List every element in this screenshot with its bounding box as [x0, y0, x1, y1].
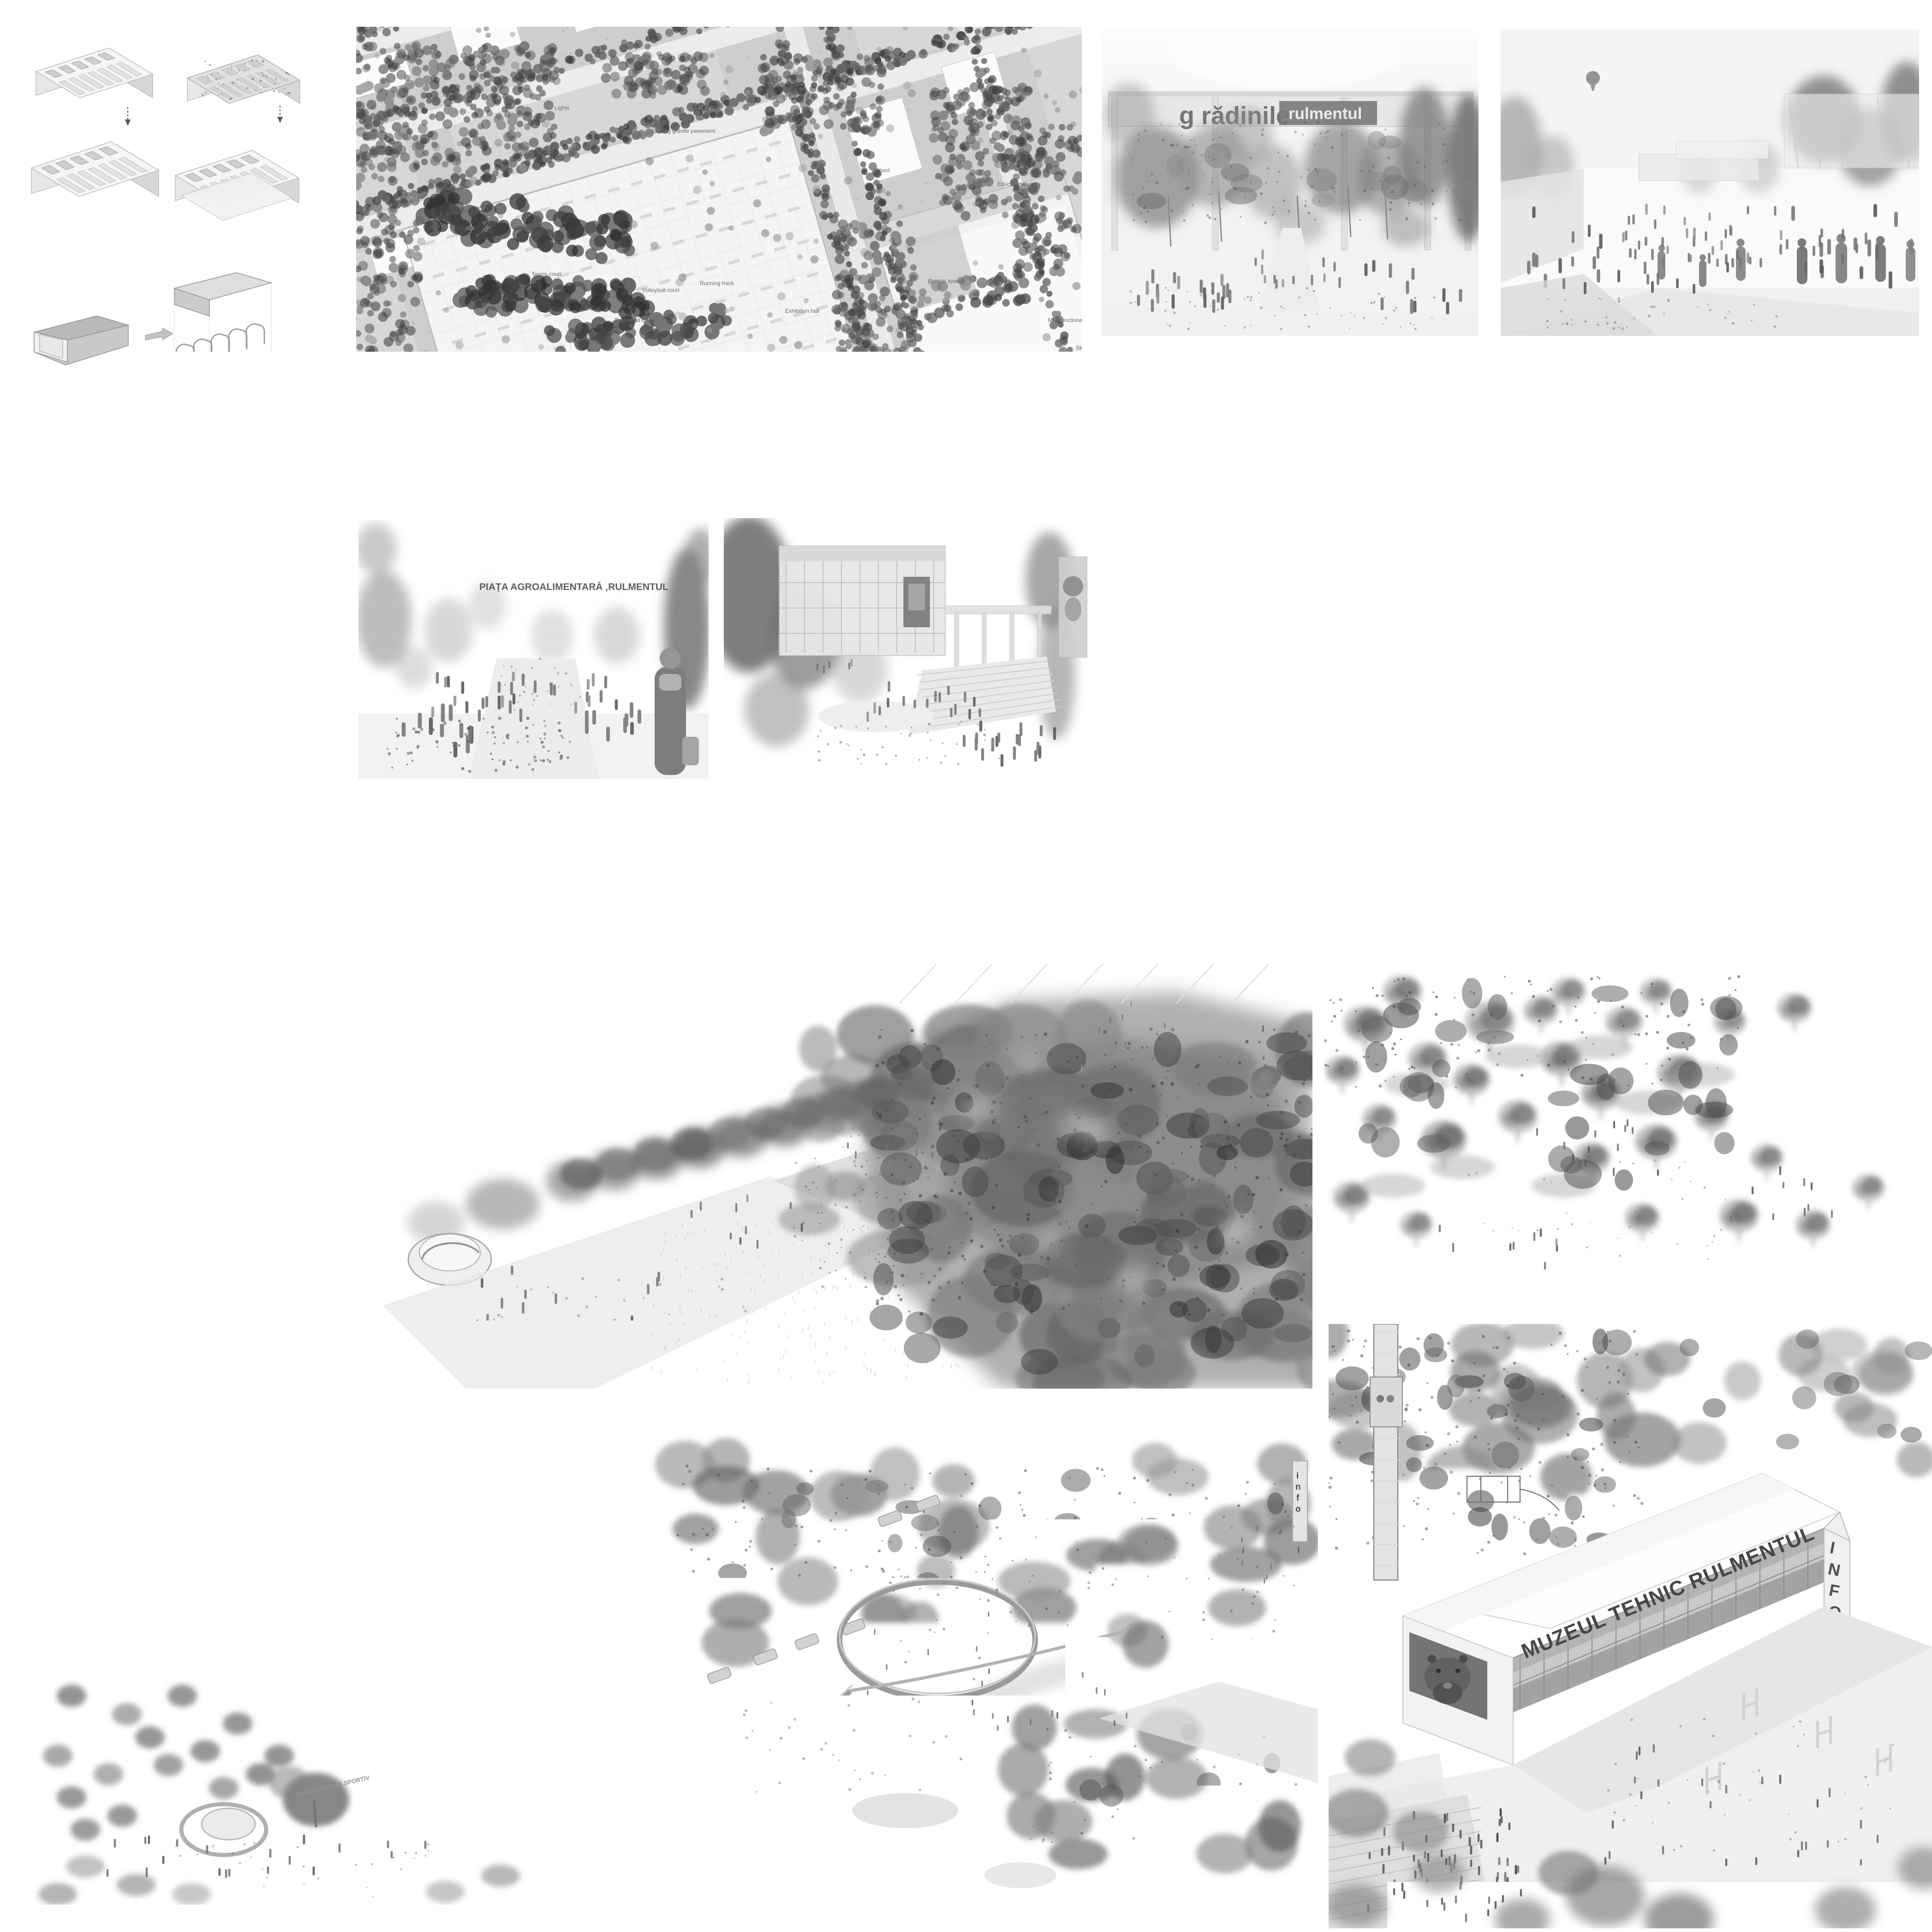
svg-text:Urban gardening market: Urban gardening market: [734, 398, 794, 404]
svg-text:Cafe and meeting space: Cafe and meeting space: [1495, 769, 1555, 776]
svg-text:Stage storage: Stage storage: [1172, 683, 1204, 688]
svg-text:Freestyle arena: Freestyle arena: [1707, 646, 1746, 653]
svg-text:Educational clubs: Educational clubs: [997, 181, 1041, 187]
svg-text:Drainage asphalt: Drainage asphalt: [633, 499, 675, 506]
svg-text:o: o: [1295, 1504, 1301, 1514]
svg-text:for stage design: for stage design: [1103, 720, 1135, 725]
svg-text:Volleyball court: Volleyball court: [642, 287, 680, 293]
svg-text:n: n: [1295, 1482, 1301, 1492]
svg-text:Cloakroom: Cloakroom: [1439, 687, 1464, 693]
svg-text:School: School: [873, 167, 890, 173]
svg-text:separated from the main hall b: separated from the main hall by movable …: [1153, 574, 1325, 580]
svg-text:Market space for local manufac: Market space for local manufactures: [721, 462, 810, 469]
svg-text:Tennis court: Tennis court: [531, 271, 561, 277]
svg-text:rulmentul: rulmentul: [1288, 105, 1362, 123]
svg-text:Multifunctional hall: Multifunctional hall: [1048, 317, 1082, 323]
svg-text:Flexible foyer café/library wi: Flexible foyer café/library with access …: [1610, 813, 1771, 819]
svg-text:f: f: [1296, 1493, 1300, 1503]
svg-text:Running track: Running track: [700, 280, 734, 286]
svg-text:Exhibition and event space: Exhibition and event space: [1716, 579, 1783, 586]
svg-text:Creative activities: Creative activities: [1859, 772, 1895, 777]
svg-text:CLUB SPORTIV ‚RULMENTUL‘: CLUB SPORTIV ‚RULMENTUL‘: [76, 565, 299, 580]
svg-text:Exhibition hall: Exhibition hall: [785, 308, 819, 314]
svg-text:Access to educational centre: Access to educational centre: [1781, 950, 1840, 955]
svg-text:Atelier 2: Atelier 2: [1777, 507, 1794, 512]
svg-text:Multi-function hall: Multi-function hall: [1342, 568, 1385, 574]
svg-text:Course room: Course room: [1746, 701, 1776, 707]
svg-text:for night shows: for night shows: [1446, 433, 1484, 439]
svg-text:i: i: [1296, 1471, 1299, 1481]
svg-text:Delivery access: Delivery access: [1103, 714, 1135, 719]
svg-text:Sports clubs: Sports clubs: [762, 116, 793, 123]
svg-text:Ticket office: Ticket office: [1255, 769, 1284, 775]
svg-text:Multipurpose hall / flexible a: Multipurpose hall / flexible auditorium …: [1153, 566, 1259, 572]
svg-text:Existing granite pavement: Existing granite pavement: [651, 128, 716, 134]
svg-text:Open activity space in the mul: Open activity space in the multifunction…: [1446, 417, 1556, 423]
svg-text:Library: Library: [1809, 728, 1825, 733]
svg-text:Flexible foyer over the entire: Flexible foyer over the entire length: [1319, 769, 1406, 776]
svg-text:Basketball courts: Basketball courts: [614, 317, 656, 323]
svg-text:Reception: Reception: [1884, 576, 1905, 581]
svg-text:Central space: Central space: [928, 278, 962, 284]
svg-text:Community maker spaces - urban: Community maker spaces - urban manufactu…: [573, 432, 704, 439]
svg-text:Wardrobe Guests: Wardrobe Guests: [1216, 728, 1255, 733]
svg-text:Access: Access: [1103, 747, 1117, 752]
svg-text:Educational centre: Educational centre: [1762, 763, 1804, 768]
svg-text:PIAȚA AGROALIMENTARĂ ‚RULMENTU: PIAȚA AGROALIMENTARĂ ‚RULMENTUL: [479, 582, 668, 592]
svg-text:Makerspace atelier: Makerspace atelier: [1119, 767, 1162, 773]
svg-text:Rehearsal spaces: Rehearsal spaces: [1513, 566, 1557, 573]
svg-text:Main access to the multi-purpo: Main access to the multi-purpose hall an…: [1278, 947, 1404, 954]
svg-text:Lights: Lights: [555, 105, 569, 111]
svg-text:Atelier 1: Atelier 1: [1708, 507, 1725, 512]
svg-text:Kitchen: Kitchen: [1535, 687, 1552, 693]
svg-text:maker space: maker space: [1103, 753, 1129, 758]
svg-text:flexible roof, overhead crane: flexible roof, overhead crane structure …: [1446, 425, 1590, 431]
svg-text:Meeting: Meeting: [1674, 507, 1690, 512]
svg-text:Museum and Cafe: Museum and Cafe: [917, 379, 962, 386]
svg-text:Skatepark: Skatepark: [1076, 345, 1082, 351]
svg-text:Exhibition and event space: Exhibition and event space: [1792, 423, 1859, 429]
svg-text:Main rehearsal room: Main rehearsal room: [1677, 723, 1723, 729]
